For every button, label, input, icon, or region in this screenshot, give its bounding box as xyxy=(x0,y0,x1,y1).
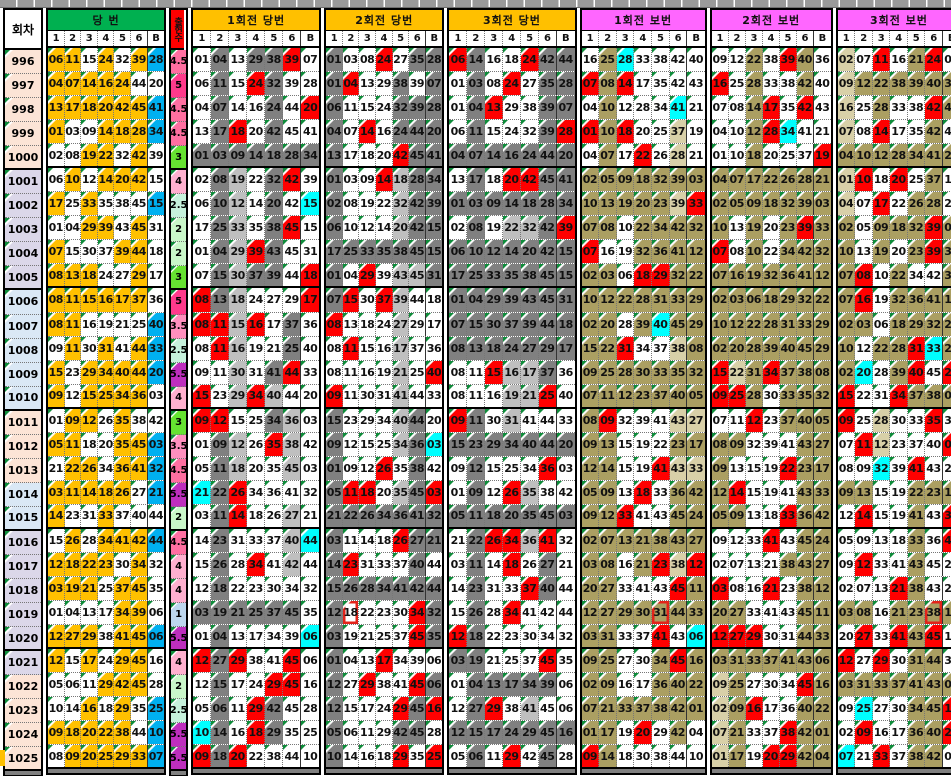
number-cell[interactable]: 17 xyxy=(114,288,131,311)
number-cell[interactable]: 27 xyxy=(855,625,873,647)
number-cell[interactable]: 12 xyxy=(599,288,617,311)
number-cell[interactable]: 35 xyxy=(247,216,265,239)
number-cell[interactable]: 12 xyxy=(193,649,211,672)
number-cell[interactable]: 20 xyxy=(114,168,131,191)
number-cell[interactable]: 43 xyxy=(797,649,814,672)
number-cell[interactable]: 07 xyxy=(838,745,856,767)
number-cell[interactable]: 28 xyxy=(873,96,891,119)
number-cell[interactable]: 19 xyxy=(814,144,831,166)
number-cell[interactable]: 14 xyxy=(376,216,393,239)
number-cell[interactable]: 01 xyxy=(326,48,343,71)
number-cell[interactable]: 29 xyxy=(265,721,283,744)
number-cell[interactable]: 38 xyxy=(652,529,670,552)
col-header[interactable]: 2 xyxy=(211,31,229,46)
number-cell[interactable]: 24 xyxy=(521,48,539,71)
number-cell[interactable]: 25 xyxy=(376,433,393,456)
number-cell[interactable]: 05 xyxy=(855,216,873,239)
number-cell[interactable]: 37 xyxy=(652,337,670,360)
col-header[interactable]: B xyxy=(943,31,951,46)
number-cell[interactable]: 33 xyxy=(485,264,503,286)
row-label[interactable]: 1000 xyxy=(5,146,41,170)
number-cell[interactable]: 22 xyxy=(376,192,393,215)
number-cell[interactable]: 04 xyxy=(687,721,705,744)
number-cell[interactable]: 07 xyxy=(582,385,600,407)
number-cell[interactable]: 10 xyxy=(148,721,165,744)
number-cell[interactable]: 33 xyxy=(943,649,951,672)
number-cell[interactable]: 19 xyxy=(873,240,891,263)
number-cell[interactable]: 38 xyxy=(376,673,393,696)
number-cell[interactable]: 43 xyxy=(521,288,539,311)
number-cell[interactable]: 16 xyxy=(98,288,115,311)
number-cell[interactable]: 03 xyxy=(343,168,360,191)
number-cell[interactable]: 08 xyxy=(48,313,65,336)
number-cell[interactable]: 36 xyxy=(426,337,443,360)
number-cell[interactable]: 15 xyxy=(65,649,82,672)
number-cell[interactable]: 41 xyxy=(409,505,426,527)
number-cell[interactable]: 11 xyxy=(229,697,247,720)
number-cell[interactable]: 02 xyxy=(838,577,856,600)
number-cell[interactable]: 26 xyxy=(652,144,670,166)
number-cell[interactable]: 39 xyxy=(763,433,780,456)
number-cell[interactable]: 37 xyxy=(539,361,557,384)
number-cell[interactable]: 01 xyxy=(943,745,951,767)
number-cell[interactable]: 39 xyxy=(890,457,908,480)
number-cell[interactable]: 15 xyxy=(326,577,343,600)
number-cell[interactable]: 13 xyxy=(746,505,763,527)
number-cell[interactable]: 04 xyxy=(467,673,485,696)
number-cell[interactable]: 39 xyxy=(247,240,265,263)
number-cell[interactable]: 28 xyxy=(229,553,247,576)
number-cell[interactable]: 17 xyxy=(148,264,165,286)
number-cell[interactable]: 16 xyxy=(873,601,891,624)
col-header[interactable]: 1 xyxy=(326,31,343,46)
col-header[interactable]: 1 xyxy=(712,31,729,46)
number-cell[interactable]: 44 xyxy=(557,48,575,71)
number-cell[interactable]: 08 xyxy=(326,361,343,384)
number-cell[interactable]: 34 xyxy=(652,216,670,239)
number-cell[interactable]: 44 xyxy=(925,649,943,672)
number-cell[interactable]: 20 xyxy=(521,240,539,263)
number-cell[interactable]: 01 xyxy=(582,120,600,143)
number-cell[interactable]: 45 xyxy=(539,721,557,744)
number-cell[interactable]: 27 xyxy=(409,529,426,552)
row-label[interactable]: 1001 xyxy=(5,170,41,194)
number-cell[interactable]: 03 xyxy=(426,433,443,456)
number-cell[interactable]: 15 xyxy=(449,433,467,456)
number-cell[interactable]: 40 xyxy=(908,361,926,384)
number-cell[interactable]: 03 xyxy=(343,48,360,71)
number-cell[interactable]: 07 xyxy=(838,288,856,311)
number-cell[interactable]: 09 xyxy=(712,48,729,71)
number-cell[interactable]: 45 xyxy=(409,481,426,504)
number-cell[interactable]: 16 xyxy=(873,721,891,744)
number-cell[interactable]: 40 xyxy=(652,313,670,336)
number-cell[interactable]: 22 xyxy=(343,505,360,527)
number-cell[interactable]: 33 xyxy=(301,361,319,384)
number-cell[interactable]: 22 xyxy=(652,433,670,456)
number-cell[interactable]: 33 xyxy=(617,577,635,600)
number-cell[interactable]: 42 xyxy=(814,505,831,527)
number-cell[interactable]: 34 xyxy=(908,144,926,166)
number-cell[interactable]: 41 xyxy=(763,601,780,624)
number-cell[interactable]: 18 xyxy=(359,144,376,166)
number-cell[interactable]: 35 xyxy=(265,457,283,480)
number-cell[interactable]: 30 xyxy=(229,361,247,384)
number-cell[interactable]: 02 xyxy=(712,337,729,360)
number-cell[interactable]: 03 xyxy=(211,144,229,166)
number-cell[interactable]: 12 xyxy=(855,337,873,360)
number-cell[interactable]: 03 xyxy=(193,601,211,624)
number-cell[interactable]: 12 xyxy=(729,529,746,552)
number-cell[interactable]: 22 xyxy=(746,313,763,336)
number-cell[interactable]: 23 xyxy=(652,192,670,215)
number-cell[interactable]: 34 xyxy=(763,361,780,384)
number-cell[interactable]: 41 xyxy=(114,337,131,360)
number-cell[interactable]: 11 xyxy=(855,433,873,456)
number-cell[interactable]: 11 xyxy=(467,385,485,407)
number-cell[interactable]: 27 xyxy=(729,625,746,647)
number-cell[interactable]: 09 xyxy=(229,144,247,166)
number-cell[interactable]: 10 xyxy=(687,745,705,767)
number-cell[interactable]: 12 xyxy=(855,553,873,576)
number-cell[interactable]: 25 xyxy=(247,409,265,432)
row-label[interactable]: 1007 xyxy=(5,315,41,339)
number-cell[interactable]: 20 xyxy=(265,192,283,215)
number-cell[interactable]: 12 xyxy=(687,553,705,576)
number-cell[interactable]: 19 xyxy=(746,216,763,239)
number-cell[interactable]: 26 xyxy=(908,192,926,215)
number-cell[interactable]: 06 xyxy=(687,625,705,647)
number-cell[interactable]: 27 xyxy=(729,601,746,624)
number-cell[interactable]: 01 xyxy=(193,48,211,71)
number-cell[interactable]: 09 xyxy=(211,433,229,456)
number-cell[interactable]: 35 xyxy=(114,433,131,456)
number-cell[interactable]: 16 xyxy=(98,72,115,95)
number-cell[interactable]: 17 xyxy=(890,721,908,744)
number-cell[interactable]: 03 xyxy=(449,649,467,672)
number-cell[interactable]: 24 xyxy=(376,313,393,336)
number-cell[interactable]: 03 xyxy=(557,457,575,480)
number-cell[interactable]: 35 xyxy=(114,409,131,432)
number-cell[interactable]: 17 xyxy=(359,697,376,720)
number-cell[interactable]: 24 xyxy=(503,72,521,95)
number-cell[interactable]: 04 xyxy=(582,96,600,119)
number-cell[interactable]: 38 xyxy=(780,553,797,576)
number-cell[interactable]: 22 xyxy=(943,721,951,744)
appearance-count-cell[interactable]: 4.5 xyxy=(171,122,186,146)
number-cell[interactable]: 24 xyxy=(247,673,265,696)
number-cell[interactable]: 18 xyxy=(301,264,319,286)
number-cell[interactable]: 35 xyxy=(908,120,926,143)
number-cell[interactable]: 28 xyxy=(763,120,780,143)
appearance-count-cell[interactable]: 4.5 xyxy=(171,531,186,555)
number-cell[interactable]: 45 xyxy=(283,601,301,624)
number-cell[interactable]: 29 xyxy=(873,649,891,672)
appearance-count-cell[interactable]: 3.5 xyxy=(171,435,186,459)
number-cell[interactable]: 37 xyxy=(114,505,131,527)
number-cell[interactable]: 17 xyxy=(634,72,652,95)
number-cell[interactable]: 45 xyxy=(131,216,148,239)
number-cell[interactable]: 09 xyxy=(746,192,763,215)
number-cell[interactable]: 45 xyxy=(409,697,426,720)
number-cell[interactable]: 14 xyxy=(81,481,98,504)
number-cell[interactable]: 22 xyxy=(98,721,115,744)
number-cell[interactable]: 07 xyxy=(343,120,360,143)
number-cell[interactable]: 24 xyxy=(925,48,943,71)
number-cell[interactable]: 28 xyxy=(617,361,635,384)
number-cell[interactable]: 15 xyxy=(617,457,635,480)
number-cell[interactable]: 33 xyxy=(873,673,891,696)
number-cell[interactable]: 03 xyxy=(48,577,65,600)
number-cell[interactable]: 41 xyxy=(670,240,688,263)
number-cell[interactable]: 37 xyxy=(521,577,539,600)
number-cell[interactable]: 27 xyxy=(687,409,705,432)
number-cell[interactable]: 38 xyxy=(797,361,814,384)
number-cell[interactable]: 02 xyxy=(582,264,600,286)
number-cell[interactable]: 36 xyxy=(670,481,688,504)
number-cell[interactable]: 19 xyxy=(687,120,705,143)
number-cell[interactable]: 27 xyxy=(521,72,539,95)
number-cell[interactable]: 11 xyxy=(211,457,229,480)
number-cell[interactable]: 16 xyxy=(229,337,247,360)
number-cell[interactable]: 22 xyxy=(634,144,652,166)
number-cell[interactable]: 09 xyxy=(599,481,617,504)
col-header[interactable]: 2 xyxy=(65,31,82,46)
number-cell[interactable]: 42 xyxy=(797,96,814,119)
number-cell[interactable]: 31 xyxy=(855,673,873,696)
number-cell[interactable]: 21 xyxy=(393,361,410,384)
appearance-count-cell[interactable]: 4.5 xyxy=(171,459,186,483)
number-cell[interactable]: 31 xyxy=(247,361,265,384)
number-cell[interactable]: 05 xyxy=(326,481,343,504)
number-cell[interactable]: 34 xyxy=(393,649,410,672)
number-cell[interactable]: 34 xyxy=(890,385,908,407)
number-cell[interactable]: 34 xyxy=(247,385,265,407)
number-cell[interactable]: 17 xyxy=(814,457,831,480)
number-cell[interactable]: 42 xyxy=(539,216,557,239)
number-cell[interactable]: 45 xyxy=(283,120,301,143)
number-cell[interactable]: 28 xyxy=(426,48,443,71)
number-cell[interactable]: 07 xyxy=(599,529,617,552)
number-cell[interactable]: 01 xyxy=(943,48,951,71)
number-cell[interactable]: 21 xyxy=(634,529,652,552)
appearance-count-cell[interactable]: 2 xyxy=(171,242,186,266)
number-cell[interactable]: 06 xyxy=(426,649,443,672)
number-cell[interactable]: 25 xyxy=(283,337,301,360)
number-cell[interactable]: 11 xyxy=(485,745,503,767)
number-cell[interactable]: 17 xyxy=(426,313,443,336)
number-cell[interactable]: 40 xyxy=(409,553,426,576)
col-header[interactable]: B xyxy=(687,31,705,46)
number-cell[interactable]: 30 xyxy=(114,553,131,576)
number-cell[interactable]: 39 xyxy=(426,192,443,215)
number-cell[interactable]: 17 xyxy=(449,264,467,286)
number-cell[interactable]: 33 xyxy=(873,553,891,576)
number-cell[interactable]: 42 xyxy=(925,745,943,767)
number-cell[interactable]: 36 xyxy=(780,697,797,720)
number-cell[interactable]: 22 xyxy=(687,264,705,286)
number-cell[interactable]: 25 xyxy=(855,697,873,720)
number-cell[interactable]: 32 xyxy=(617,409,635,432)
number-cell[interactable]: 02 xyxy=(712,553,729,576)
number-cell[interactable]: 31 xyxy=(908,649,926,672)
number-cell[interactable]: 42 xyxy=(148,409,165,432)
number-cell[interactable]: 41 xyxy=(670,96,688,119)
number-cell[interactable]: 43 xyxy=(393,264,410,286)
number-cell[interactable]: 08 xyxy=(855,264,873,286)
col-header[interactable]: 6 xyxy=(670,31,688,46)
number-cell[interactable]: 45 xyxy=(670,313,688,336)
number-cell[interactable]: 25 xyxy=(539,385,557,407)
number-cell[interactable]: 16 xyxy=(746,577,763,600)
number-cell[interactable]: 10 xyxy=(617,216,635,239)
number-cell[interactable]: 27 xyxy=(393,313,410,336)
number-cell[interactable]: 28 xyxy=(301,697,319,720)
number-cell[interactable]: 40 xyxy=(925,721,943,744)
number-cell[interactable]: 11 xyxy=(467,120,485,143)
appearance-count-cell[interactable]: 5.5 xyxy=(171,483,186,507)
number-cell[interactable]: 02 xyxy=(582,673,600,696)
number-cell[interactable]: 40 xyxy=(797,48,814,71)
number-cell[interactable]: 12 xyxy=(873,144,891,166)
number-cell[interactable]: 13 xyxy=(729,457,746,480)
number-cell[interactable]: 07 xyxy=(712,721,729,744)
number-cell[interactable]: 21 xyxy=(814,120,831,143)
number-cell[interactable]: 27 xyxy=(617,649,635,672)
number-cell[interactable]: 14 xyxy=(485,144,503,166)
number-cell[interactable]: 45 xyxy=(925,625,943,647)
number-cell[interactable]: 25 xyxy=(343,240,360,263)
number-cell[interactable]: 11 xyxy=(814,601,831,624)
number-cell[interactable]: 01 xyxy=(712,745,729,767)
number-cell[interactable]: 17 xyxy=(376,649,393,672)
number-cell[interactable]: 32 xyxy=(908,216,926,239)
number-cell[interactable]: 34 xyxy=(503,529,521,552)
number-cell[interactable]: 31 xyxy=(98,337,115,360)
number-cell[interactable]: 29 xyxy=(81,216,98,239)
number-cell[interactable]: 22 xyxy=(81,553,98,576)
number-cell[interactable]: 13 xyxy=(855,240,873,263)
number-cell[interactable]: 18 xyxy=(634,168,652,191)
number-cell[interactable]: 20 xyxy=(148,72,165,95)
number-cell[interactable]: 34 xyxy=(247,553,265,576)
number-cell[interactable]: 41 xyxy=(557,168,575,191)
number-cell[interactable]: 22 xyxy=(617,288,635,311)
number-cell[interactable]: 18 xyxy=(211,577,229,600)
number-cell[interactable]: 21 xyxy=(763,577,780,600)
number-cell[interactable]: 33 xyxy=(797,313,814,336)
number-cell[interactable]: 16 xyxy=(746,697,763,720)
number-cell[interactable]: 18 xyxy=(890,529,908,552)
number-cell[interactable]: 18 xyxy=(148,240,165,263)
number-cell[interactable]: 08 xyxy=(326,337,343,360)
number-cell[interactable]: 12 xyxy=(712,625,729,647)
number-cell[interactable]: 34 xyxy=(557,192,575,215)
number-cell[interactable]: 32 xyxy=(814,385,831,407)
number-cell[interactable]: 36 xyxy=(557,361,575,384)
number-cell[interactable]: 28 xyxy=(148,673,165,696)
number-cell[interactable]: 39 xyxy=(131,48,148,71)
number-cell[interactable]: 05 xyxy=(193,697,211,720)
number-cell[interactable]: 04 xyxy=(193,96,211,119)
number-cell[interactable]: 09 xyxy=(48,721,65,744)
number-cell[interactable]: 28 xyxy=(539,192,557,215)
number-cell[interactable]: 24 xyxy=(521,144,539,166)
number-cell[interactable]: 05 xyxy=(729,192,746,215)
number-cell[interactable]: 37 xyxy=(908,385,926,407)
number-cell[interactable]: 08 xyxy=(48,288,65,311)
number-cell[interactable]: 33 xyxy=(376,553,393,576)
number-cell[interactable]: 45 xyxy=(670,577,688,600)
number-cell[interactable]: 16 xyxy=(229,721,247,744)
number-cell[interactable]: 12 xyxy=(449,721,467,744)
number-cell[interactable]: 04 xyxy=(211,48,229,71)
number-cell[interactable]: 04 xyxy=(343,649,360,672)
number-cell[interactable]: 09 xyxy=(193,745,211,767)
number-cell[interactable]: 21 xyxy=(729,721,746,744)
number-cell[interactable]: 03 xyxy=(148,385,165,407)
number-cell[interactable]: 13 xyxy=(65,264,82,286)
number-cell[interactable]: 10 xyxy=(712,216,729,239)
number-cell[interactable]: 17 xyxy=(873,192,891,215)
number-cell[interactable]: 44 xyxy=(409,409,426,432)
number-cell[interactable]: 19 xyxy=(617,721,635,744)
number-cell[interactable]: 29 xyxy=(283,288,301,311)
number-cell[interactable]: 43 xyxy=(780,601,797,624)
number-cell[interactable]: 11 xyxy=(467,361,485,384)
number-cell[interactable]: 08 xyxy=(687,337,705,360)
number-cell[interactable]: 38 xyxy=(780,72,797,95)
number-cell[interactable]: 36 xyxy=(131,385,148,407)
col-header[interactable]: 6 xyxy=(797,31,814,46)
col-header[interactable]: 4 xyxy=(376,31,393,46)
number-cell[interactable]: 27 xyxy=(114,264,131,286)
number-cell[interactable]: 19 xyxy=(343,625,360,647)
number-cell[interactable]: 28 xyxy=(557,745,575,767)
number-cell[interactable]: 39 xyxy=(634,313,652,336)
number-cell[interactable]: 43 xyxy=(670,409,688,432)
number-cell[interactable]: 31 xyxy=(746,361,763,384)
number-cell[interactable]: 12 xyxy=(359,216,376,239)
number-cell[interactable]: 40 xyxy=(393,409,410,432)
number-cell[interactable]: 41 xyxy=(908,673,926,696)
number-cell[interactable]: 15 xyxy=(343,288,360,311)
number-cell[interactable]: 06 xyxy=(193,192,211,215)
number-cell[interactable]: 12 xyxy=(838,649,856,672)
number-cell[interactable]: 37 xyxy=(670,120,688,143)
number-cell[interactable]: 13 xyxy=(193,120,211,143)
number-cell[interactable]: 43 xyxy=(670,457,688,480)
number-cell[interactable]: 03 xyxy=(326,625,343,647)
number-cell[interactable]: 44 xyxy=(283,745,301,767)
number-cell[interactable]: 22 xyxy=(814,288,831,311)
number-cell[interactable]: 18 xyxy=(763,505,780,527)
number-cell[interactable]: 41 xyxy=(908,457,926,480)
col-header[interactable]: 6 xyxy=(283,31,301,46)
number-cell[interactable]: 14 xyxy=(211,721,229,744)
number-cell[interactable]: 44 xyxy=(301,553,319,576)
number-cell[interactable]: 16 xyxy=(814,673,831,696)
number-cell[interactable]: 18 xyxy=(634,481,652,504)
row-label[interactable]: 1010 xyxy=(5,387,41,411)
number-cell[interactable]: 18 xyxy=(890,216,908,239)
number-cell[interactable]: 21 xyxy=(908,48,926,71)
number-cell[interactable]: 07 xyxy=(326,288,343,311)
number-cell[interactable]: 29 xyxy=(780,288,797,311)
number-cell[interactable]: 34 xyxy=(409,601,426,624)
number-cell[interactable]: 42 xyxy=(925,264,943,286)
number-cell[interactable]: 13 xyxy=(326,144,343,166)
